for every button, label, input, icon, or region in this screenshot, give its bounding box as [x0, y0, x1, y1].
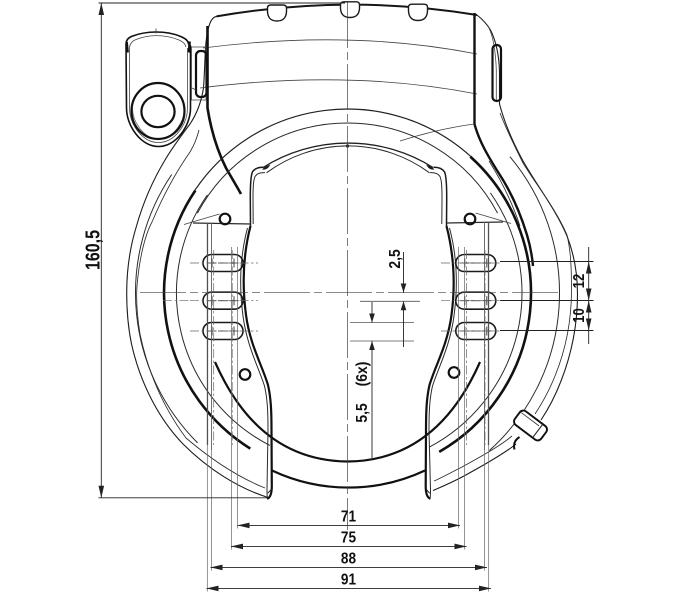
svg-text:88: 88 [341, 551, 356, 568]
svg-text:(6x): (6x) [354, 362, 371, 387]
svg-text:12: 12 [571, 274, 588, 289]
svg-text:71: 71 [341, 509, 356, 526]
svg-text:10: 10 [571, 308, 588, 323]
svg-text:75: 75 [341, 530, 356, 547]
svg-text:160,5: 160,5 [81, 230, 104, 270]
svg-text:5,5: 5,5 [354, 403, 371, 422]
svg-text:2,5: 2,5 [387, 249, 404, 268]
svg-text:91: 91 [341, 572, 356, 589]
